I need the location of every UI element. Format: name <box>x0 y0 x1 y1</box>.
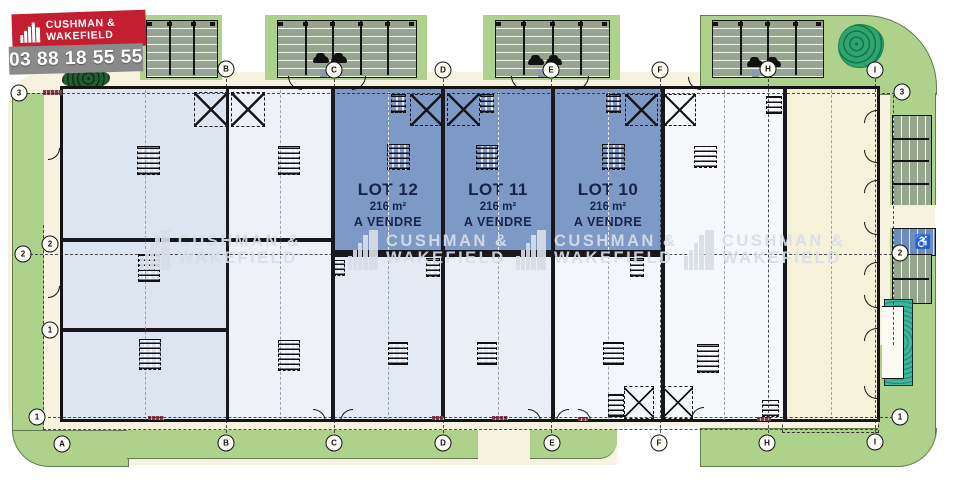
stall-divider <box>740 21 742 75</box>
hatch-grid-symbol <box>476 145 498 170</box>
phone-number: 03 88 18 55 55 <box>9 46 143 71</box>
stall-pier <box>409 22 414 26</box>
bay-axis <box>831 90 832 420</box>
stall-pier <box>816 22 821 26</box>
grid-axis-horizontal <box>30 254 892 255</box>
hatch-grid-symbol <box>697 344 719 373</box>
stall-pier <box>303 22 308 26</box>
stall-divider <box>893 183 929 185</box>
stall-pier <box>385 22 390 26</box>
grid-marker-1: 1 <box>42 322 59 339</box>
stall-pier <box>167 22 172 26</box>
skylight-icon <box>624 386 654 419</box>
grid-marker-I: I <box>867 434 884 451</box>
stall-pier <box>602 22 607 26</box>
accessible-parking-icon: ♿ <box>915 234 931 250</box>
stall-pier <box>521 22 526 26</box>
stall-divider <box>169 21 171 75</box>
meter-box <box>752 70 759 77</box>
grid-marker-2: 2 <box>892 245 909 262</box>
grid-axis-horizontal <box>48 417 893 418</box>
grid-marker-E: E <box>544 435 561 452</box>
landscape-strip-bottom-1 <box>127 430 478 459</box>
stall-pier <box>358 22 363 26</box>
stall-pier <box>578 22 583 26</box>
stall-divider <box>523 21 525 75</box>
grid-marker-3: 3 <box>894 84 911 101</box>
stall-pier <box>765 22 770 26</box>
skylight-icon <box>194 92 228 127</box>
grid-axis-vertical <box>443 74 444 438</box>
grid-marker-D: D <box>435 62 452 79</box>
hatch-grid-symbol <box>602 144 625 170</box>
skylight-icon <box>663 386 693 419</box>
grid-axis-vertical <box>334 74 335 438</box>
parking-stalls <box>146 20 218 78</box>
hatch-grid-symbol <box>387 144 410 170</box>
hatch-grid-symbol <box>278 340 300 371</box>
hatch-grid-symbol <box>630 258 644 277</box>
grid-marker-A: A <box>54 436 71 453</box>
stall-divider <box>387 21 389 75</box>
hatch-grid-symbol <box>477 342 497 365</box>
grid-marker-H: H <box>759 435 776 452</box>
lot-axis-white <box>498 92 499 250</box>
car-icon <box>528 58 544 65</box>
hatch-grid-symbol <box>137 146 160 175</box>
grid-marker-1: 1 <box>892 409 909 426</box>
hatch-grid-symbol <box>608 394 624 417</box>
hatch-grid-symbol <box>138 254 160 282</box>
skylight-icon <box>447 93 480 126</box>
grid-axis-vertical <box>226 74 227 438</box>
stall-pier <box>147 22 152 26</box>
grid-axis-vertical <box>768 74 769 438</box>
grid-marker-2: 2 <box>42 236 59 253</box>
hatch-grid-symbol <box>762 400 779 417</box>
logo-line2: WAKEFIELD <box>46 29 116 43</box>
stall-pier <box>330 22 335 26</box>
stall-divider <box>193 21 195 75</box>
grid-marker-F: F <box>652 62 669 79</box>
bay-axis <box>724 90 725 420</box>
grid-marker-D: D <box>435 435 452 452</box>
landscape-corner-bottom-left <box>12 430 129 467</box>
site-plan: LOT 12 216 m² A VENDRE LOT 11 216 m² A V… <box>0 0 953 493</box>
grid-axis-horizontal <box>27 93 895 94</box>
landscape-left-band <box>12 93 44 432</box>
grid-axis-vertical <box>660 74 661 438</box>
grid-marker-F: F <box>651 435 668 452</box>
logo-building-icon <box>20 20 41 43</box>
grid-marker-C: C <box>326 435 343 452</box>
grid-marker-3: 3 <box>11 85 28 102</box>
hatch-grid-symbol <box>391 94 406 113</box>
grid-marker-B: B <box>218 61 235 78</box>
grid-marker-2: 2 <box>15 246 32 263</box>
hatch-grid-symbol <box>139 339 161 370</box>
parking-stalls <box>277 20 417 78</box>
stall-pier <box>738 22 743 26</box>
stall-pier <box>496 22 501 26</box>
grid-marker-1: 1 <box>29 409 46 426</box>
grid-marker-B: B <box>218 435 235 452</box>
loading-apron-dashed <box>782 419 879 433</box>
hatch-grid-symbol <box>694 146 717 168</box>
hatch-grid-symbol <box>480 94 494 113</box>
stall-divider <box>893 160 929 162</box>
stall-pier <box>210 22 215 26</box>
grid-marker-E: E <box>543 62 560 79</box>
apron-boundary <box>893 95 894 345</box>
stall-pier <box>550 22 555 26</box>
stall-pier <box>793 22 798 26</box>
grid-marker-I: I <box>867 62 884 79</box>
skylight-icon <box>410 94 443 126</box>
lot-axis-white <box>388 92 389 250</box>
phone-number-bar: 03 88 18 55 55 <box>9 43 144 74</box>
grid-marker-C: C <box>326 62 343 79</box>
hatch-grid-symbol <box>426 258 440 277</box>
stall-divider <box>305 21 307 75</box>
stall-divider <box>893 138 929 140</box>
grid-axis-horizontal <box>43 429 878 430</box>
stall-pier <box>191 22 196 26</box>
hatch-grid-symbol <box>388 342 408 365</box>
grid-marker-H: H <box>760 61 777 78</box>
stall-pier <box>278 22 283 26</box>
hatch-grid-symbol <box>603 342 624 365</box>
right-corridor <box>878 205 935 228</box>
skylight-icon <box>231 92 265 127</box>
skylight-icon <box>625 94 658 126</box>
car-icon <box>313 56 329 63</box>
stall-divider <box>795 21 797 75</box>
lot-axis-white <box>608 92 609 250</box>
skylight-icon <box>664 94 696 126</box>
stall-divider <box>580 21 582 75</box>
grid-axis-vertical <box>875 74 876 438</box>
hatch-grid-symbol <box>278 146 300 175</box>
stall-divider <box>360 21 362 75</box>
stall-pier <box>713 22 718 26</box>
stall-divider <box>893 278 929 280</box>
grid-axis-vertical <box>551 74 552 438</box>
